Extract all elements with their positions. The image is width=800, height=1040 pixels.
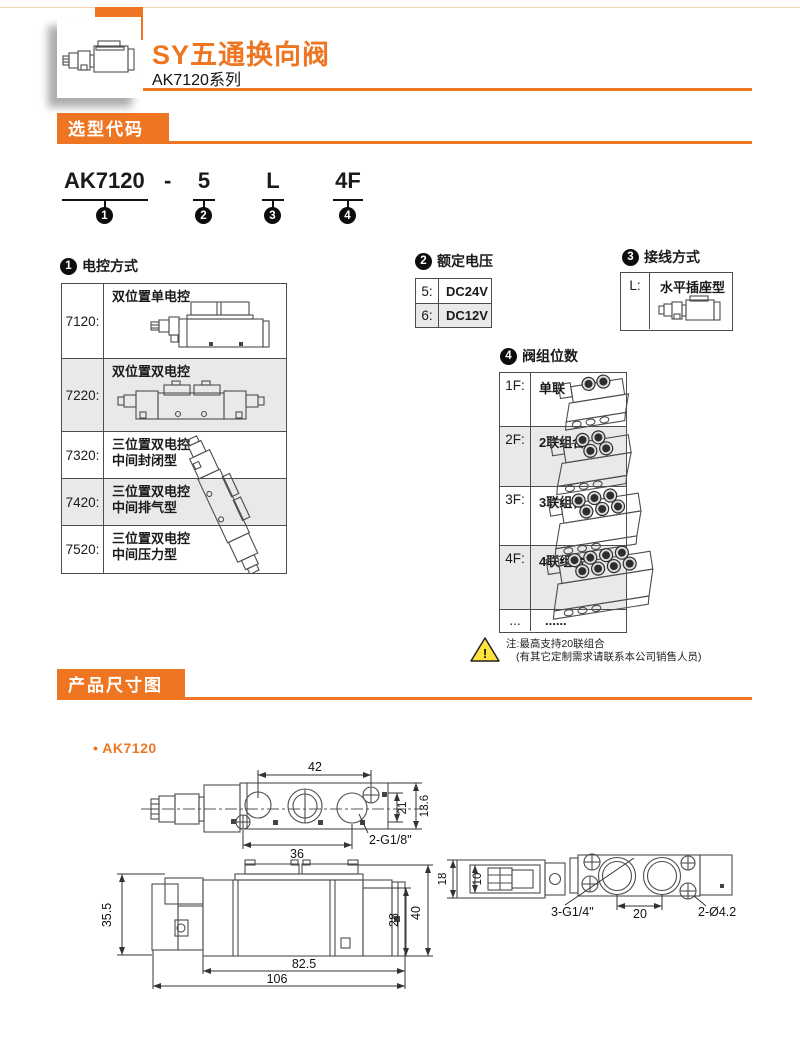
dim-40-label: 40	[409, 906, 423, 920]
dimensions-badge: 产品尺寸图	[57, 669, 185, 698]
code-number-2: 2	[195, 207, 212, 224]
voltage-table: 5: DC24V 6: DC12V	[415, 278, 492, 328]
dim-10-label: 10	[472, 873, 484, 886]
dim-35-5-label: 35.5	[100, 903, 114, 927]
table-row: 7120: 双位置单电控	[62, 284, 286, 358]
dimension-drawing-top-view: 42 36 2-G1/8" 21 13.6	[135, 756, 445, 862]
section-1-number: 1	[60, 258, 77, 275]
row-code: L:	[621, 273, 650, 329]
model-code-stations: 4F	[333, 168, 363, 194]
stations-table: 1F: 单联 2F: 2联组合 3F: 3联组合 4F: 4联组合 ... ..…	[499, 372, 627, 633]
dimensions-rule	[57, 697, 752, 700]
valve-thumbnail-drawing	[61, 32, 137, 84]
section-4-title: 阀组位数	[522, 346, 578, 366]
dim-port-bottom-label: 3-G1/4"	[551, 905, 594, 919]
wiring-table: L: 水平插座型	[620, 272, 733, 331]
dim-28-label: 28	[387, 913, 401, 927]
dim-18-label: 18	[438, 873, 449, 886]
note-line-2: (有其它定制需求请联系本公司销售人员)	[516, 649, 702, 664]
row-code: 7220:	[62, 359, 104, 431]
section-3-number: 3	[622, 249, 639, 266]
manifold-4f-drawing	[538, 541, 670, 625]
table-row: 5: DC24V	[416, 279, 491, 303]
dim-82-5-label: 82.5	[292, 957, 316, 971]
section-1-title: 电控方式	[82, 256, 138, 276]
row-code: ...	[500, 610, 531, 631]
dim-21-label: 21	[397, 802, 409, 815]
table-row: L: 水平插座型	[621, 273, 732, 329]
dim-port-top-label: 2-G1/8"	[369, 833, 412, 847]
dimension-drawing-front-view: 35.5 28 40 82.5 106	[95, 858, 445, 998]
selection-rule	[57, 141, 752, 144]
row-code: 5:	[416, 279, 439, 303]
header-rule	[143, 88, 752, 91]
product-thumbnail-box	[57, 17, 141, 98]
row-label: DC24V	[439, 279, 491, 303]
code-number-4: 4	[339, 207, 356, 224]
row-code: 6:	[416, 304, 439, 327]
section-voltage-header: 2 额定电压	[415, 251, 493, 271]
row-code: 4F:	[500, 546, 531, 609]
warning-exclamation: !	[483, 646, 487, 661]
section-stations-header: 4 阀组位数	[500, 346, 578, 366]
warning-icon: !	[470, 636, 500, 663]
model-code-voltage: 5	[193, 168, 215, 194]
row-code: 1F:	[500, 373, 531, 426]
row-label: 水平插座型	[650, 273, 732, 296]
model-code-wiring: L	[262, 168, 284, 194]
row-code: 7520:	[62, 526, 104, 573]
section-wiring-header: 3 接线方式	[622, 247, 700, 267]
row-code: 7120:	[62, 284, 104, 358]
dimension-model-label: • AK7120	[93, 740, 157, 756]
valve-7220-drawing	[116, 377, 266, 427]
table-row: 7220: 双位置双电控	[62, 358, 286, 431]
selection-code-badge: 选型代码	[57, 113, 169, 142]
valve-7120-drawing	[149, 300, 284, 356]
model-code-dash: -	[164, 168, 171, 194]
section-2-title: 额定电压	[437, 251, 493, 271]
control-table: 7120: 双位置单电控	[61, 283, 287, 574]
row-label: DC12V	[439, 304, 491, 327]
row-code: 2F:	[500, 427, 531, 486]
dim-42-label: 42	[308, 760, 322, 774]
section-2-number: 2	[415, 253, 432, 270]
code-number-1: 1	[96, 207, 113, 224]
row-code: 7320:	[62, 432, 104, 478]
dimension-model-text: AK7120	[102, 740, 156, 756]
valve-3position-diagonal-drawing	[167, 430, 287, 574]
section-4-number: 4	[500, 348, 517, 365]
dim-holes-label: 2-Ø4.2	[698, 905, 736, 919]
dim-106-label: 106	[267, 972, 288, 986]
dim-13-6-label: 13.6	[419, 795, 431, 817]
section-3-title: 接线方式	[644, 247, 700, 267]
row-code: 7420:	[62, 479, 104, 525]
model-code-base: AK7120	[64, 168, 145, 194]
wiring-valve-drawing	[658, 294, 728, 328]
dim-20-label: 20	[633, 907, 647, 921]
code-number-3: 3	[264, 207, 281, 224]
bullet-icon: •	[93, 740, 98, 756]
catalog-page: SY五通换向阀 AK7120系列 选型代码 AK7120 - 5 L 4F 1 …	[0, 0, 800, 1040]
series-subtitle: AK7120系列	[152, 66, 241, 90]
dimension-drawing-bottom-view: 18 10 20 3-G1/4" 2-Ø4.2	[438, 848, 760, 940]
section-control-header: 1 电控方式	[60, 256, 138, 276]
row-code: 3F:	[500, 487, 531, 545]
table-row: 6: DC12V	[416, 303, 491, 327]
